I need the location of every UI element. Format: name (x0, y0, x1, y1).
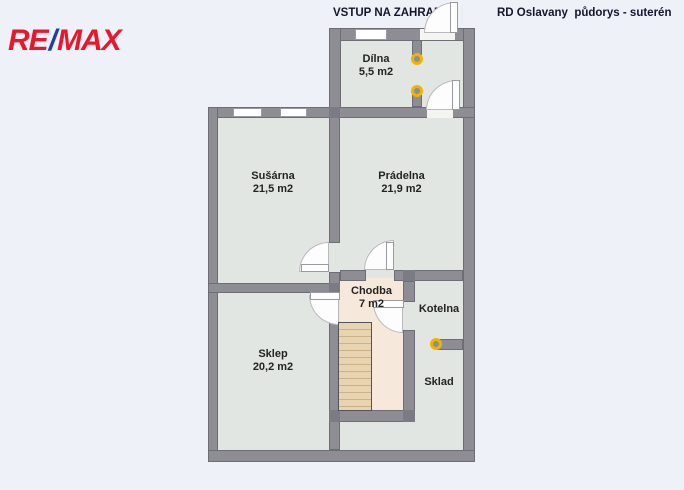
room-name: Sklep (218, 348, 328, 361)
corridor-door-leaf (452, 80, 460, 110)
susarna-door-leaf (301, 264, 329, 272)
wall-junction (329, 410, 340, 422)
room-name: Chodba (340, 285, 403, 298)
room-area: 7 m2 (340, 298, 403, 311)
sklep-door-leaf (310, 292, 340, 300)
room-name: Kotelna (415, 303, 463, 316)
room-name: Dílna (340, 53, 412, 66)
yellow-marker-dilna-bottom (411, 85, 423, 97)
wall-junction (403, 270, 415, 281)
staircase (338, 322, 372, 411)
room-area: 21,9 m2 (340, 183, 463, 196)
room-name: Sklad (415, 376, 463, 389)
garden-door-leaf (450, 2, 458, 33)
wall-susarna-pradelna (329, 117, 340, 243)
room-label-dilna: Dílna 5,5 m2 (340, 53, 412, 79)
room-label-susarna: Sušárna 21,5 m2 (218, 170, 328, 196)
wall-kotelna-left-upper (403, 281, 415, 302)
window-susarna-left (233, 108, 262, 117)
yellow-marker-kotelna (430, 338, 442, 350)
floor-plan: Dílna 5,5 m2 Sušárna 21,5 m2 Prádelna 21… (0, 0, 684, 490)
wall-junction (329, 107, 340, 118)
wall-bottom-outer (208, 450, 475, 462)
room-label-sklep: Sklep 20,2 m2 (218, 348, 328, 374)
window-susarna-right (280, 108, 307, 117)
wall-pradelna-bottom-left (340, 270, 366, 281)
room-label-kotelna: Kotelna (415, 303, 463, 316)
wall-right-outer (463, 28, 475, 462)
wall-sklad-left (403, 330, 415, 422)
room-name: Prádelna (340, 170, 463, 183)
room-name: Sušárna (218, 170, 328, 183)
room-area: 20,2 m2 (218, 361, 328, 374)
room-label-sklad: Sklad (415, 376, 463, 389)
wall-junction (403, 410, 415, 422)
room-label-chodba: Chodba 7 m2 (340, 285, 403, 311)
room-area: 21,5 m2 (218, 183, 328, 196)
window-dilna (355, 29, 387, 40)
room-label-pradelna: Prádelna 21,9 m2 (340, 170, 463, 196)
pradelna-door-leaf (386, 242, 394, 270)
room-area: 5,5 m2 (340, 66, 412, 79)
yellow-marker-dilna-top (411, 53, 423, 65)
